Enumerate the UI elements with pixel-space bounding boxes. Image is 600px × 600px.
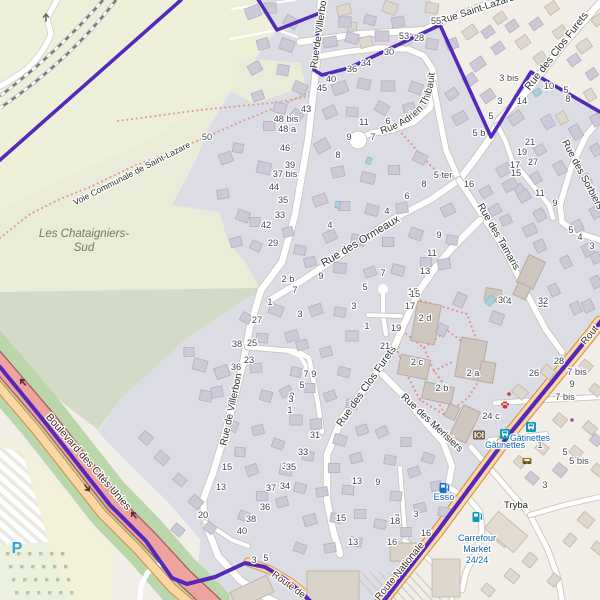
svg-text:8: 8 — [565, 94, 570, 104]
svg-text:4: 4 — [384, 206, 389, 216]
svg-text:45: 45 — [317, 83, 327, 93]
svg-text:21: 21 — [380, 341, 390, 351]
svg-text:5 ter: 5 ter — [434, 170, 453, 180]
svg-text:2 d: 2 d — [419, 313, 432, 323]
svg-text:9: 9 — [318, 271, 323, 281]
svg-text:13: 13 — [348, 537, 358, 547]
svg-text:24 c: 24 c — [482, 411, 500, 421]
svg-text:13: 13 — [420, 266, 430, 276]
svg-text:15: 15 — [336, 513, 346, 523]
svg-text:35: 35 — [278, 195, 288, 205]
svg-text:9: 9 — [552, 198, 557, 208]
svg-text:5 b: 5 b — [473, 128, 486, 138]
svg-text:27: 27 — [528, 157, 538, 167]
svg-text:13: 13 — [352, 476, 362, 486]
svg-text:Gâtinettes: Gâtinettes — [485, 440, 526, 450]
svg-text:20: 20 — [198, 510, 208, 520]
svg-text:9: 9 — [346, 132, 351, 142]
svg-text:3: 3 — [251, 555, 256, 565]
svg-text:11: 11 — [427, 248, 437, 258]
svg-text:3: 3 — [297, 309, 302, 319]
svg-text:8: 8 — [335, 150, 340, 160]
svg-text:31: 31 — [310, 430, 320, 440]
svg-text:9: 9 — [436, 230, 441, 240]
svg-text:42: 42 — [261, 220, 271, 230]
svg-text:7: 7 — [380, 268, 385, 278]
svg-text:28: 28 — [554, 356, 564, 366]
svg-text:6: 6 — [385, 116, 390, 126]
svg-text:27: 27 — [252, 315, 262, 325]
svg-text:50: 50 — [202, 132, 212, 142]
svg-text:34: 34 — [361, 58, 371, 68]
svg-text:P: P — [12, 540, 23, 557]
svg-text:37: 37 — [266, 483, 276, 493]
svg-text:23: 23 — [244, 355, 254, 365]
svg-text:4: 4 — [577, 232, 582, 242]
svg-text:7 9: 7 9 — [304, 369, 317, 379]
svg-text:Carrefour: Carrefour — [458, 533, 496, 543]
svg-text:33: 33 — [275, 210, 285, 220]
svg-text:5 bis: 5 bis — [569, 456, 589, 466]
svg-text:53: 53 — [399, 31, 409, 41]
svg-text:7: 7 — [292, 285, 297, 295]
svg-text:36: 36 — [231, 362, 241, 372]
svg-text:30: 30 — [384, 47, 394, 57]
svg-text:36: 36 — [260, 502, 270, 512]
svg-text:46: 46 — [280, 143, 290, 153]
svg-text:37 bis: 37 bis — [273, 169, 298, 179]
svg-text:7 bis: 7 bis — [567, 367, 587, 377]
svg-text:5: 5 — [263, 553, 268, 563]
svg-text:Market: Market — [463, 544, 491, 554]
svg-text:26: 26 — [529, 368, 539, 378]
svg-text:19: 19 — [517, 147, 527, 157]
svg-text:15: 15 — [222, 462, 232, 472]
svg-text:19: 19 — [391, 323, 401, 333]
svg-text:1: 1 — [287, 405, 292, 415]
svg-text:34: 34 — [280, 481, 290, 491]
svg-text:3: 3 — [497, 96, 502, 106]
svg-text:2 b: 2 b — [436, 383, 449, 393]
svg-text:40: 40 — [326, 74, 336, 84]
svg-text:Esso: Esso — [433, 492, 454, 503]
svg-text:40: 40 — [237, 526, 247, 536]
svg-text:9: 9 — [375, 477, 380, 487]
svg-text:24/24: 24/24 — [466, 555, 489, 565]
svg-text:5: 5 — [299, 380, 304, 390]
svg-text:38: 38 — [246, 514, 256, 524]
svg-text:1: 1 — [364, 321, 369, 331]
svg-text:44: 44 — [269, 182, 279, 192]
svg-text:43: 43 — [301, 104, 311, 114]
svg-text:2 b: 2 b — [282, 274, 295, 284]
svg-text:Les Chataigniers-: Les Chataigniers- — [39, 228, 129, 240]
svg-text:33: 33 — [298, 447, 308, 457]
svg-text:48 bis: 48 bis — [274, 114, 299, 124]
svg-text:15: 15 — [511, 168, 521, 178]
svg-text:16: 16 — [421, 528, 431, 538]
svg-text:5: 5 — [568, 225, 573, 235]
svg-text:38: 38 — [232, 339, 242, 349]
svg-text:55: 55 — [431, 16, 441, 26]
svg-text:25: 25 — [247, 338, 257, 348]
svg-text:5: 5 — [362, 282, 367, 292]
svg-text:35: 35 — [286, 462, 296, 472]
svg-text:6: 6 — [404, 191, 409, 201]
svg-text:9: 9 — [569, 379, 574, 389]
svg-text:1: 1 — [267, 297, 272, 307]
svg-text:5: 5 — [562, 447, 567, 457]
svg-text:32: 32 — [538, 296, 548, 306]
svg-text:13: 13 — [216, 482, 226, 492]
svg-text:3: 3 — [413, 509, 418, 519]
svg-text:14: 14 — [517, 96, 527, 106]
svg-text:3: 3 — [542, 480, 547, 490]
svg-text:3: 3 — [288, 394, 293, 404]
svg-text:16: 16 — [387, 537, 397, 547]
svg-text:8: 8 — [421, 179, 426, 189]
svg-text:28: 28 — [414, 33, 424, 43]
svg-text:11: 11 — [535, 188, 545, 198]
svg-text:4: 4 — [506, 296, 511, 306]
svg-text:48 a: 48 a — [278, 124, 297, 134]
svg-text:21: 21 — [525, 137, 535, 147]
svg-text:2 c: 2 c — [411, 357, 424, 367]
svg-text:11: 11 — [359, 117, 369, 127]
svg-text:3: 3 — [351, 301, 356, 311]
svg-text:3: 3 — [589, 241, 594, 251]
svg-text:29: 29 — [268, 238, 278, 248]
svg-text:2 a: 2 a — [467, 368, 481, 378]
svg-text:18: 18 — [390, 516, 400, 526]
svg-text:10: 10 — [544, 81, 554, 91]
svg-text:5: 5 — [488, 111, 493, 121]
svg-text:4: 4 — [327, 220, 332, 230]
svg-text:7: 7 — [370, 132, 375, 142]
svg-text:Sud: Sud — [74, 242, 95, 254]
svg-text:7 bis: 7 bis — [555, 392, 575, 402]
svg-text:17: 17 — [405, 301, 415, 311]
svg-text:3 bis: 3 bis — [499, 73, 519, 83]
svg-text:Tryba: Tryba — [504, 500, 529, 511]
svg-text:16: 16 — [464, 179, 474, 189]
svg-text:36: 36 — [347, 64, 357, 74]
svg-text:15: 15 — [410, 289, 420, 299]
